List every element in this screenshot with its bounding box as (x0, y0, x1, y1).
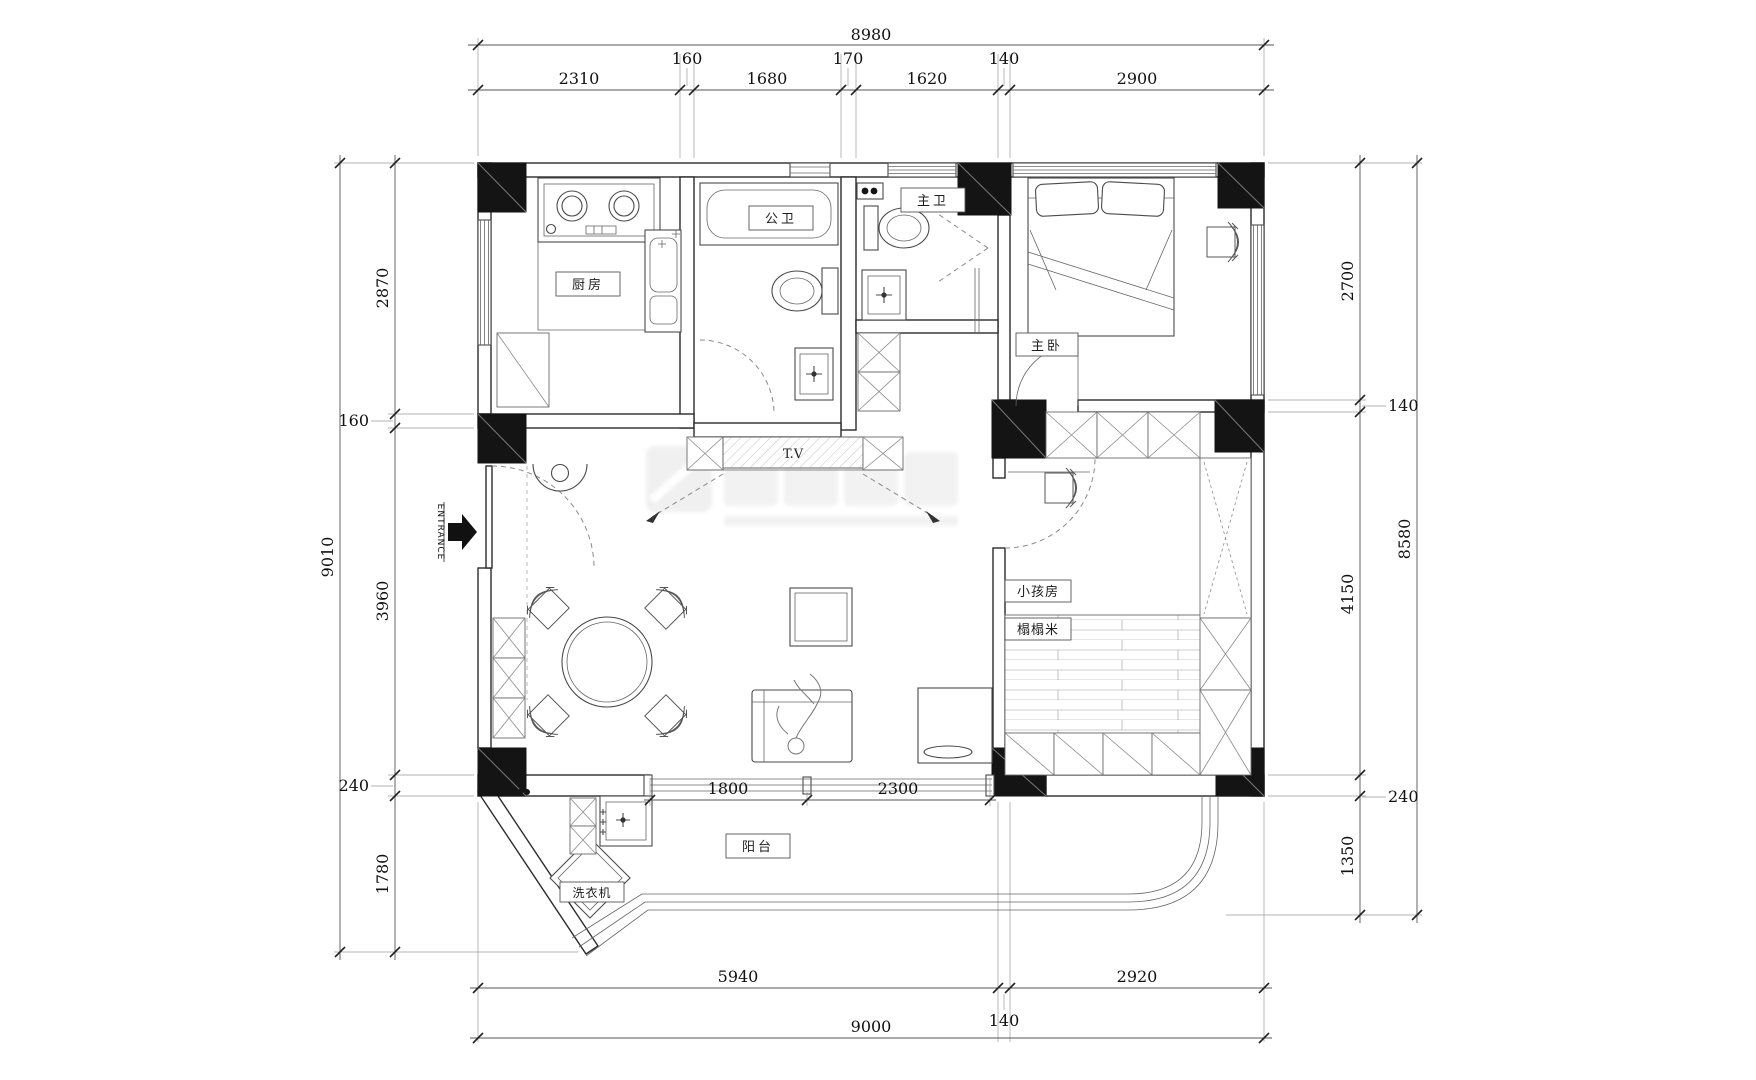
toilet-icon (772, 268, 838, 314)
room-label-balcony: 阳台 (726, 834, 790, 858)
toilet-icon (864, 206, 929, 250)
kitchen-sink-icon (645, 230, 681, 332)
dim-top-seg5: 140 (989, 49, 1020, 68)
dim-right-seg0: 2700 (1338, 261, 1357, 302)
dim-left-seg4: 1780 (373, 854, 392, 895)
coffee-table-icon (790, 588, 852, 646)
balcony: 1800 2300 阳台 洗衣机 (550, 778, 1218, 956)
dim-balcony-seg0: 1800 (708, 779, 749, 798)
console-table-icon (533, 464, 587, 491)
svg-text:公卫: 公卫 (765, 212, 797, 227)
dim-right-seg3: 240 (1388, 787, 1419, 806)
dim-balcony-seg1: 2300 (878, 779, 919, 798)
kids-chair-icon (1045, 468, 1077, 508)
dining-chair-icon (641, 582, 692, 633)
room-label-kids-room: 小孩房 (1005, 580, 1071, 602)
dining-table-icon (562, 617, 652, 707)
dim-bottom-seg0: 5940 (718, 967, 759, 986)
north-wardrobe-cabinets (1046, 412, 1200, 458)
dim-right-seg4: 1350 (1338, 836, 1357, 877)
dining-chair-icon (522, 582, 573, 633)
svg-text:主卫: 主卫 (917, 194, 949, 209)
sofa-icon (752, 674, 852, 762)
dim-top-seg6: 2900 (1117, 69, 1158, 88)
vanity-sink-icon (795, 348, 833, 400)
balcony-sliding-door (644, 775, 994, 796)
svg-text:厨房: 厨房 (572, 277, 604, 293)
tatami-drawers (1005, 733, 1200, 775)
dim-bottom-seg1: 140 (989, 1011, 1020, 1030)
dining-chair-icon (522, 691, 573, 742)
entry-door-leaf (486, 466, 492, 568)
double-bed-icon (1028, 178, 1174, 336)
svg-text:主卧: 主卧 (1031, 339, 1063, 354)
balcony-dims: 1800 2300 (644, 778, 996, 806)
entry-wall-cabinets (493, 618, 525, 738)
vent-window-icon (857, 183, 883, 199)
entrance-label: ENTRANCE (435, 504, 445, 561)
svg-text:榻榻米: 榻榻米 (1017, 623, 1059, 638)
floor-plan-drawing: 8980 2310 160 1680 170 1620 140 2900 901… (0, 0, 1756, 1080)
room-label-master-bedroom: 主卧 (1016, 333, 1078, 356)
dim-top-seg0: 2310 (559, 69, 600, 88)
dim-right-seg2: 4150 (1338, 574, 1357, 615)
vanity-sink-icon (862, 270, 906, 320)
svg-text:小孩房: 小孩房 (1017, 584, 1059, 600)
master-bath-door-swing (938, 214, 988, 282)
balcony-sink-icon (600, 796, 652, 846)
entrance-arrow-icon (448, 514, 477, 550)
kids-room: 小孩房 榻榻米 (1005, 412, 1251, 775)
dim-bottom-overall: 9000 (851, 1017, 892, 1036)
svg-text:洗衣机: 洗衣机 (572, 885, 611, 900)
public-bathroom: 公卫 (700, 183, 838, 400)
room-label-public-bath: 公卫 (749, 206, 813, 230)
dim-left-seg0: 2870 (373, 268, 392, 309)
tv-label: T.V (783, 447, 804, 462)
dim-left-seg3: 240 (338, 776, 369, 795)
room-label-master-bath: 主卫 (901, 188, 965, 212)
dim-right-overall: 8580 (1395, 519, 1414, 560)
master-bedroom: 主卧 (1016, 178, 1239, 356)
dining-chair-icon (641, 691, 692, 742)
east-wardrobe (1200, 458, 1251, 775)
floor-plan-page: 8980 2310 160 1680 170 1620 140 2900 901… (0, 0, 1756, 1080)
bedroom-chair-icon (1207, 222, 1239, 262)
dim-bottom-seg2: 2920 (1117, 967, 1158, 986)
dim-left-overall: 9010 (318, 537, 337, 578)
svg-text:阳台: 阳台 (742, 840, 774, 855)
dim-top-seg3: 170 (833, 49, 864, 68)
dim-top-seg4: 1620 (907, 69, 948, 88)
balcony-cabinets (570, 798, 596, 854)
dim-top-overall: 8980 (851, 25, 892, 44)
dim-right-seg1: 140 (1388, 396, 1419, 415)
public-bath-door-swing (700, 340, 774, 414)
dim-left-seg2: 3960 (373, 581, 392, 622)
room-label-kitchen: 厨房 (556, 272, 620, 296)
living-dining (493, 464, 992, 763)
dim-left-seg1: 160 (338, 411, 369, 430)
stove-icon (538, 178, 660, 242)
side-bench-icon (918, 688, 992, 763)
dim-top-seg1: 160 (672, 49, 703, 68)
entry-door-swing (492, 466, 594, 568)
hall-storage-cabinets (858, 333, 900, 411)
entrance: ENTRANCE (435, 502, 477, 562)
dimensions-left: 9010 2870 160 3960 240 1780 (318, 155, 578, 960)
fridge-icon (497, 333, 549, 407)
dimensions-top: 8980 2310 160 1680 170 1620 140 2900 (468, 25, 1274, 158)
room-label-tatami: 榻榻米 (1005, 618, 1071, 640)
room-label-washer: 洗衣机 (560, 882, 624, 902)
dim-top-seg2: 1680 (747, 69, 788, 88)
